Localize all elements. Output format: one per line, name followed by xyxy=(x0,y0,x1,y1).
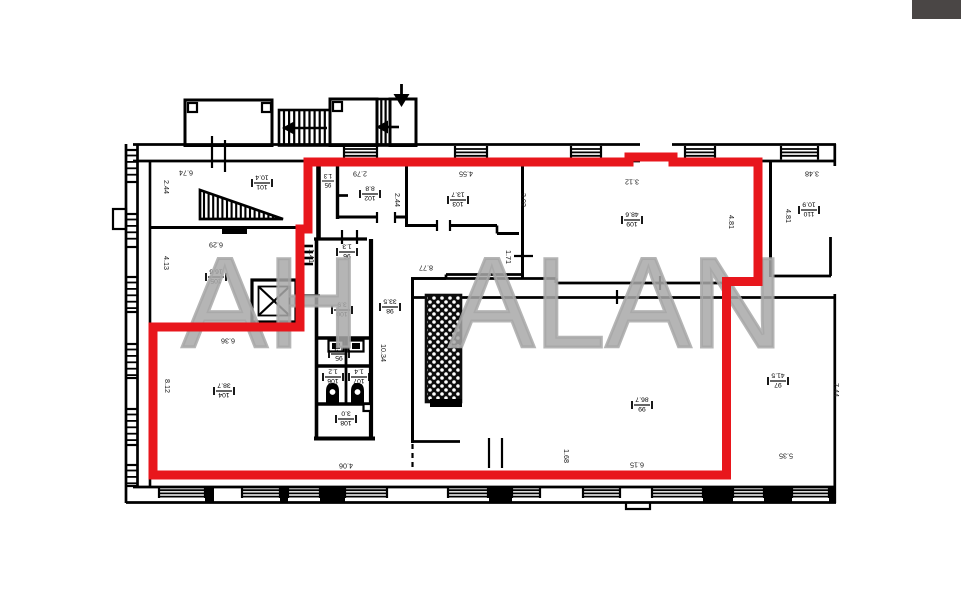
svg-text:106: 106 xyxy=(327,377,339,384)
svg-text:1.68: 1.68 xyxy=(562,449,571,463)
svg-text:6.74: 6.74 xyxy=(179,169,193,178)
svg-text:2.44: 2.44 xyxy=(393,193,402,207)
svg-text:3.48: 3.48 xyxy=(805,170,819,179)
svg-text:104: 104 xyxy=(218,391,230,398)
svg-text:2.44: 2.44 xyxy=(162,180,171,194)
svg-text:3.12: 3.12 xyxy=(625,178,639,187)
svg-text:8.77: 8.77 xyxy=(419,264,433,273)
svg-text:4.81: 4.81 xyxy=(784,209,793,223)
svg-text:13.7: 13.7 xyxy=(451,191,464,198)
svg-text:98: 98 xyxy=(386,307,394,314)
svg-text:33.5: 33.5 xyxy=(383,298,396,305)
svg-text:4.13: 4.13 xyxy=(162,256,171,270)
svg-text:99: 99 xyxy=(638,405,646,412)
svg-text:3.0: 3.0 xyxy=(341,410,351,417)
svg-text:10.9: 10.9 xyxy=(802,201,815,208)
svg-text:AH: AH xyxy=(182,232,360,375)
svg-text:110: 110 xyxy=(803,210,814,217)
svg-text:101: 101 xyxy=(256,183,268,190)
svg-text:3.02: 3.02 xyxy=(519,193,528,207)
svg-text:38.7: 38.7 xyxy=(217,382,230,389)
svg-text:8.8: 8.8 xyxy=(365,185,375,192)
svg-text:95: 95 xyxy=(324,181,331,187)
svg-text:108: 108 xyxy=(340,419,352,426)
svg-text:48.6: 48.6 xyxy=(625,211,638,218)
svg-text:7.44: 7.44 xyxy=(832,383,841,397)
svg-text:2.79: 2.79 xyxy=(353,170,367,179)
svg-text:4.81: 4.81 xyxy=(727,215,736,229)
svg-text:102: 102 xyxy=(364,194,376,201)
svg-text:97: 97 xyxy=(774,381,782,388)
svg-text:10.34: 10.34 xyxy=(379,344,388,362)
svg-text:109: 109 xyxy=(626,220,638,227)
svg-text:1.3: 1.3 xyxy=(323,172,332,178)
svg-text:4.06: 4.06 xyxy=(339,462,353,471)
svg-text:5.35: 5.35 xyxy=(779,452,793,461)
svg-text:103: 103 xyxy=(452,200,464,207)
svg-text:86.7: 86.7 xyxy=(635,396,648,403)
svg-text:107: 107 xyxy=(353,377,365,384)
svg-text:10.4: 10.4 xyxy=(255,174,268,181)
svg-text:6.15: 6.15 xyxy=(630,461,644,470)
svg-text:4.55: 4.55 xyxy=(459,170,473,179)
svg-text:ALAN: ALAN xyxy=(449,232,783,375)
svg-text:8.12: 8.12 xyxy=(163,379,172,393)
